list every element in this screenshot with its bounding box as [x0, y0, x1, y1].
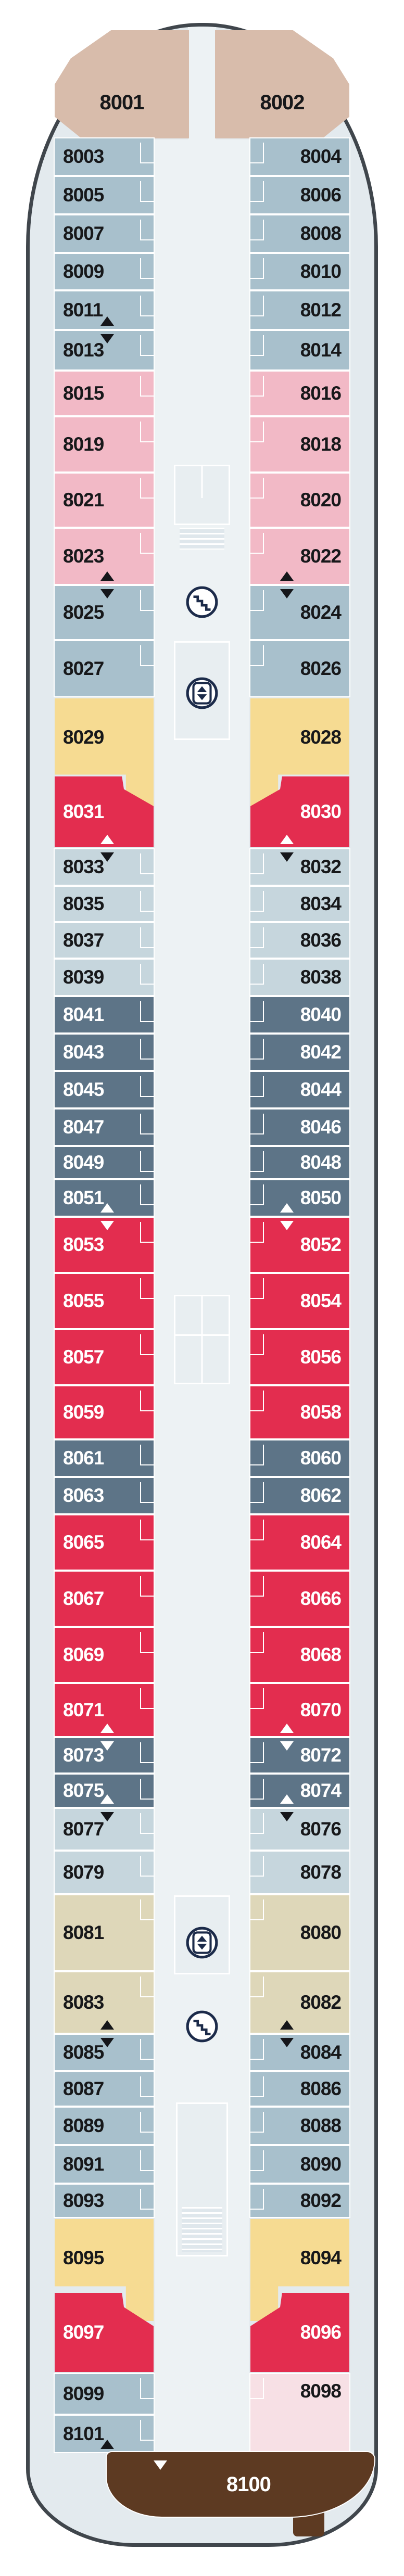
cabin-number: 8015	[63, 382, 104, 404]
cabin-number: 8093	[63, 2190, 104, 2212]
cabin-8075[interactable]: 8075	[55, 1775, 154, 1807]
cabin-8084[interactable]: 8084	[250, 2035, 349, 2070]
arrow-down-icon	[280, 1741, 294, 1751]
cabin-8027[interactable]: 8027	[55, 641, 154, 696]
cabin-8047[interactable]: 8047	[55, 1110, 154, 1145]
cabin-door	[250, 1856, 264, 1877]
cabin-number: 8087	[63, 2078, 104, 2100]
cabin-number: 8090	[300, 2153, 341, 2175]
cabin-door	[140, 2112, 154, 2133]
cabin-8098[interactable]: 8098	[250, 2374, 349, 2452]
cabin-door	[140, 927, 154, 948]
cabin-door	[140, 1520, 154, 1540]
arrow-down-icon	[154, 2460, 167, 2470]
cabin-number: 8053	[63, 1234, 104, 1256]
cabin-8064[interactable]: 8064	[250, 1515, 349, 1570]
cabin-number: 8099	[63, 2383, 104, 2405]
cabin-8081[interactable]: 8081	[55, 1895, 154, 1970]
arrow-up-icon	[100, 1203, 114, 1213]
cabin-8052[interactable]: 8052	[250, 1218, 349, 1272]
cabin-number: 8072	[300, 1744, 341, 1766]
cabin-8025[interactable]: 8025	[55, 586, 154, 639]
cabin-8074[interactable]: 8074	[250, 1775, 349, 1807]
arrow-up-icon	[280, 1724, 294, 1733]
cabin-8089[interactable]: 8089	[55, 2108, 154, 2144]
cabin-number: 8056	[300, 1346, 341, 1368]
cabin-8066[interactable]: 8066	[250, 1572, 349, 1626]
cabin-door	[250, 1114, 264, 1134]
cabin-8002[interactable]: 8002	[215, 30, 349, 138]
cabin-door	[250, 1482, 264, 1503]
cabin-8086[interactable]: 8086	[250, 2072, 349, 2106]
cabin-number: 8096	[300, 2322, 341, 2343]
cabin-door	[250, 2150, 264, 2171]
cabin-number: 8032	[300, 856, 341, 878]
cabin-number: 8058	[300, 1401, 341, 1423]
cabin-8090[interactable]: 8090	[250, 2146, 349, 2183]
bow-corridor	[188, 27, 216, 141]
cabin-8053[interactable]: 8053	[55, 1218, 154, 1272]
cabin-number: 8013	[63, 339, 104, 361]
cabin-number: 8021	[63, 489, 104, 511]
cabin-8077[interactable]: 8077	[55, 1809, 154, 1850]
cabin-number: 8046	[300, 1116, 341, 1138]
cabin-door	[140, 1445, 154, 1465]
cabin-number: 8069	[63, 1644, 104, 1666]
cabin-door	[140, 1114, 154, 1134]
cabin-8067[interactable]: 8067	[55, 1572, 154, 1626]
cabin-door	[250, 335, 264, 356]
cabin-number: 8064	[300, 1532, 341, 1553]
cabin-8055[interactable]: 8055	[55, 1274, 154, 1328]
cabin-door	[140, 478, 154, 499]
cabin-door	[140, 1632, 154, 1653]
cabin-8042[interactable]: 8042	[250, 1035, 349, 1070]
cabin-number: 8008	[300, 223, 341, 245]
cabin-number: 8079	[63, 1861, 104, 1883]
cabin-8056[interactable]: 8056	[250, 1330, 349, 1384]
forward-service-room	[174, 465, 230, 525]
cabin-door	[140, 2076, 154, 2097]
cabin-door	[140, 1222, 154, 1243]
cabin-8023[interactable]: 8023	[55, 529, 154, 584]
cabin-number: 8028	[300, 726, 341, 748]
cabin-8021[interactable]: 8021	[55, 474, 154, 527]
cabin-8049[interactable]: 8049	[55, 1147, 154, 1178]
cabin-number: 8083	[63, 1992, 104, 2013]
cabin-door	[250, 2076, 264, 2097]
arrow-down-icon	[100, 2038, 114, 2047]
cabin-door	[140, 181, 154, 202]
cabin-8076[interactable]: 8076	[250, 1809, 349, 1850]
cabin-8070[interactable]: 8070	[250, 1684, 349, 1736]
cabin-8054[interactable]: 8054	[250, 1274, 349, 1328]
elevator-icon	[185, 1925, 219, 1960]
cabin-number: 8080	[300, 1922, 341, 1944]
cabin-door	[250, 1576, 264, 1597]
cabin-number: 8001	[100, 91, 144, 114]
cabin-number: 8097	[63, 2322, 104, 2343]
cabin-number: 8048	[300, 1152, 341, 1174]
cabin-8072[interactable]: 8072	[250, 1738, 349, 1772]
cabin-number: 8067	[63, 1588, 104, 1610]
cabin-door	[140, 1688, 154, 1709]
cabin-8033[interactable]: 8033	[55, 849, 154, 885]
cabin-number: 8029	[63, 726, 104, 748]
cabin-door	[250, 645, 264, 666]
cabin-door	[250, 2189, 264, 2210]
cabin-8093[interactable]: 8093	[55, 2185, 154, 2217]
cabin-number: 8002	[260, 91, 305, 114]
cabin-door	[250, 590, 264, 611]
cabin-door	[140, 1184, 154, 1205]
cabin-door	[140, 1391, 154, 1411]
cabin-door	[140, 1779, 154, 1800]
cabin-8100[interactable]: 8100	[107, 2452, 374, 2517]
cabin-8048[interactable]: 8048	[250, 1147, 349, 1178]
cabin-door	[140, 1482, 154, 1503]
cabin-door	[250, 2039, 264, 2060]
cabin-8044[interactable]: 8044	[250, 1072, 349, 1107]
arrow-up-icon	[100, 1794, 114, 1804]
cabin-number: 8073	[63, 1744, 104, 1766]
cabin-door	[140, 964, 154, 985]
arrow-up-icon	[100, 1724, 114, 1733]
arrow-up-icon	[100, 835, 114, 844]
cabin-number: 8038	[300, 966, 341, 988]
cabin-number: 8024	[300, 602, 341, 623]
cabin-8085[interactable]: 8085	[55, 2035, 154, 2070]
cabin-door	[250, 1520, 264, 1540]
cabin-8015[interactable]: 8015	[55, 372, 154, 415]
arrow-up-icon	[100, 2020, 114, 2030]
cabin-number: 8016	[300, 382, 341, 404]
cabin-door	[250, 1779, 264, 1800]
cabin-number: 8081	[63, 1922, 104, 1944]
cabin-door	[250, 1222, 264, 1243]
cabin-door	[140, 1151, 154, 1172]
cabin-number: 8004	[300, 146, 341, 168]
cabin-number: 8054	[300, 1290, 341, 1312]
cabin-number: 8088	[300, 2115, 341, 2137]
cabin-8046[interactable]: 8046	[250, 1110, 349, 1145]
cabin-number: 8092	[300, 2190, 341, 2212]
cabin-8079[interactable]: 8079	[55, 1852, 154, 1893]
cabin-number: 8036	[300, 929, 341, 951]
forward-staircase-steps	[180, 528, 224, 550]
arrow-down-icon	[100, 1221, 114, 1230]
cabin-8008[interactable]: 8008	[250, 215, 349, 252]
cabin-8080[interactable]: 8080	[250, 1895, 349, 1970]
cabin-8020[interactable]: 8020	[250, 474, 349, 527]
cabin-door	[250, 1039, 264, 1060]
cabin-number: 8034	[300, 893, 341, 915]
cabin-8083[interactable]: 8083	[55, 1972, 154, 2033]
cabin-8006[interactable]: 8006	[250, 177, 349, 213]
cabin-8004[interactable]: 8004	[250, 138, 349, 175]
cabin-door	[140, 2150, 154, 2171]
cabin-door	[250, 1334, 264, 1355]
cabin-door	[250, 258, 264, 279]
cabin-8018[interactable]: 8018	[250, 417, 349, 471]
cabin-8051[interactable]: 8051	[55, 1180, 154, 1216]
cabin-door	[250, 1688, 264, 1709]
stairs-icon	[185, 585, 219, 619]
cabin-number: 8086	[300, 2078, 341, 2100]
cabin-8057[interactable]: 8057	[55, 1330, 154, 1384]
arrow-up-icon	[280, 2020, 294, 2030]
arrow-up-icon	[100, 316, 114, 326]
arrow-down-icon	[280, 1812, 294, 1821]
cabin-door	[140, 422, 154, 442]
cabin-door	[250, 422, 264, 442]
cabin-number: 8012	[300, 299, 341, 321]
arrow-down-icon	[100, 1812, 114, 1821]
cabin-door	[140, 1039, 154, 1060]
cabin-number: 8077	[63, 1818, 104, 1840]
cabin-number: 8062	[300, 1485, 341, 1507]
cabin-number: 8084	[300, 2042, 341, 2063]
arrow-down-icon	[280, 852, 294, 862]
cabin-door	[140, 220, 154, 240]
arrow-up-icon	[280, 1203, 294, 1213]
cabin-8014[interactable]: 8014	[250, 331, 349, 369]
cabin-number: 8045	[63, 1079, 104, 1101]
arrow-up-icon	[100, 571, 114, 581]
cabin-8065[interactable]: 8065	[55, 1515, 154, 1570]
cabin-door	[140, 2420, 154, 2441]
cabin-number: 8100	[226, 2473, 271, 2496]
cabin-number: 8095	[63, 2247, 104, 2269]
cabin-8037[interactable]: 8037	[55, 923, 154, 958]
cabin-number: 8023	[63, 545, 104, 567]
cabin-number: 8039	[63, 966, 104, 988]
cabin-number: 8011	[63, 299, 103, 321]
cabin-8009[interactable]: 8009	[55, 254, 154, 289]
cabin-door	[250, 1976, 264, 1997]
cabin-8058[interactable]: 8058	[250, 1386, 349, 1438]
cabin-number: 8050	[300, 1187, 341, 1209]
cabin-8059[interactable]: 8059	[55, 1386, 154, 1438]
cabin-number: 8098	[300, 2380, 341, 2402]
cabin-number: 8035	[63, 893, 104, 915]
cabin-8099[interactable]: 8099	[55, 2374, 154, 2414]
arrow-up-icon	[100, 2440, 114, 2449]
cabin-8092[interactable]: 8092	[250, 2185, 349, 2217]
cabin-door	[250, 1184, 264, 1205]
cabin-number: 8101	[63, 2423, 104, 2445]
cabin-number: 8027	[63, 658, 104, 680]
cabin-8034[interactable]: 8034	[250, 887, 349, 921]
cabin-number: 8078	[300, 1861, 341, 1883]
cabin-door	[250, 1151, 264, 1172]
cabin-door	[250, 376, 264, 397]
cabin-number: 8049	[63, 1152, 104, 1174]
cabin-door	[140, 1001, 154, 1022]
cabin-number: 8059	[63, 1401, 104, 1423]
cabin-8040[interactable]: 8040	[250, 997, 349, 1032]
cabin-number: 8006	[300, 184, 341, 206]
cabin-8039[interactable]: 8039	[55, 960, 154, 995]
cabin-number: 8030	[300, 801, 341, 823]
cabin-door	[250, 1899, 264, 1920]
cabin-door	[250, 2112, 264, 2133]
cabin-8038[interactable]: 8038	[250, 960, 349, 995]
cabin-number: 8076	[300, 1818, 341, 1840]
cabin-door	[250, 1742, 264, 1763]
cabin-door	[140, 1742, 154, 1763]
cabin-door	[140, 2189, 154, 2210]
cabin-8013[interactable]: 8013	[55, 331, 154, 369]
cabin-8016[interactable]: 8016	[250, 372, 349, 415]
cabin-door	[140, 2378, 154, 2399]
aft-staircase-steps	[182, 2207, 222, 2252]
arrow-up-icon	[280, 835, 294, 844]
arrow-down-icon	[100, 589, 114, 598]
cabin-8063[interactable]: 8063	[55, 1478, 154, 1513]
cabin-door	[250, 1076, 264, 1097]
arrow-down-icon	[100, 334, 114, 343]
cabin-door	[140, 335, 154, 356]
cabin-number: 8060	[300, 1447, 341, 1469]
cabin-number: 8005	[63, 184, 104, 206]
arrow-down-icon	[100, 852, 114, 862]
cabin-8078[interactable]: 8078	[250, 1852, 349, 1893]
cabin-door	[250, 220, 264, 240]
cabin-number: 8007	[63, 223, 104, 245]
cabin-8026[interactable]: 8026	[250, 641, 349, 696]
cabin-8041[interactable]: 8041	[55, 997, 154, 1032]
cabin-number: 8047	[63, 1116, 104, 1138]
cabin-number: 8022	[300, 545, 341, 567]
cabin-door	[250, 296, 264, 316]
cabin-8087[interactable]: 8087	[55, 2072, 154, 2106]
cabin-8011[interactable]: 8011	[55, 291, 154, 329]
cabin-number: 8066	[300, 1588, 341, 1610]
cabin-door	[250, 1001, 264, 1022]
cabin-8050[interactable]: 8050	[250, 1180, 349, 1216]
cabin-door	[140, 376, 154, 397]
cabin-8019[interactable]: 8019	[55, 417, 154, 471]
cabin-number: 8068	[300, 1644, 341, 1666]
arrow-down-icon	[100, 1741, 114, 1751]
cabin-door	[140, 1813, 154, 1834]
deck-plan: 8001800280038004800580068007800880098010…	[0, 0, 404, 2576]
cabin-door	[250, 891, 264, 912]
cabin-8024[interactable]: 8024	[250, 586, 349, 639]
cabin-8091[interactable]: 8091	[55, 2146, 154, 2183]
cabin-8035[interactable]: 8035	[55, 887, 154, 921]
cabin-8071[interactable]: 8071	[55, 1684, 154, 1736]
cabin-8069[interactable]: 8069	[55, 1628, 154, 1682]
elevator-icon	[185, 676, 219, 710]
cabin-8010[interactable]: 8010	[250, 254, 349, 289]
cabin-number: 8082	[300, 1992, 341, 2013]
cabin-number: 8070	[300, 1699, 341, 1721]
arrow-down-icon	[280, 2038, 294, 2047]
cabin-number: 8031	[63, 801, 104, 823]
cabin-8088[interactable]: 8088	[250, 2108, 349, 2144]
cabin-8082[interactable]: 8082	[250, 1972, 349, 2033]
cabin-door	[250, 1278, 264, 1299]
cabin-8022[interactable]: 8022	[250, 529, 349, 584]
cabin-door	[140, 891, 154, 912]
cabin-number: 8063	[63, 1485, 104, 1507]
cabin-number: 8042	[300, 1041, 341, 1063]
arrow-up-icon	[280, 571, 294, 581]
cabin-door	[250, 1632, 264, 1653]
cabin-8012[interactable]: 8012	[250, 291, 349, 329]
cabin-door	[250, 964, 264, 985]
cabin-number: 8040	[300, 1004, 341, 1026]
cabin-8032[interactable]: 8032	[250, 849, 349, 885]
cabin-door	[250, 478, 264, 499]
cabin-8007[interactable]: 8007	[55, 215, 154, 252]
cabin-8005[interactable]: 8005	[55, 177, 154, 213]
cabin-door	[140, 590, 154, 611]
cabin-number: 8051	[63, 1187, 104, 1209]
cabin-door	[140, 1856, 154, 1877]
cabin-door	[140, 296, 154, 316]
cabin-door	[250, 927, 264, 948]
cabin-number: 8037	[63, 929, 104, 951]
cabin-8043[interactable]: 8043	[55, 1035, 154, 1070]
cabin-number: 8014	[300, 339, 341, 361]
cabin-number: 8065	[63, 1532, 104, 1553]
cabin-8061[interactable]: 8061	[55, 1440, 154, 1476]
arrow-up-icon	[280, 1794, 294, 1804]
cabin-door	[140, 1334, 154, 1355]
cabin-door	[140, 143, 154, 163]
cabin-8045[interactable]: 8045	[55, 1072, 154, 1107]
cabin-8003[interactable]: 8003	[55, 138, 154, 175]
cabin-number: 8018	[300, 433, 341, 455]
stairs-icon	[185, 2009, 219, 2044]
cabin-number: 8020	[300, 489, 341, 511]
cabin-number: 8085	[63, 2042, 104, 2063]
cabin-door	[250, 1445, 264, 1465]
cabin-8101[interactable]: 8101	[55, 2416, 154, 2452]
cabin-8068[interactable]: 8068	[250, 1628, 349, 1682]
cabin-door	[140, 258, 154, 279]
cabin-door	[140, 1976, 154, 1997]
cabin-8062[interactable]: 8062	[250, 1478, 349, 1513]
cabin-number: 8019	[63, 433, 104, 455]
cabin-8001[interactable]: 8001	[55, 30, 189, 138]
cabin-door	[140, 1076, 154, 1097]
cabin-door	[250, 2378, 264, 2399]
cabin-door	[250, 853, 264, 874]
cabin-number: 8025	[63, 602, 104, 623]
cabin-number: 8041	[63, 1004, 104, 1026]
midship-service-block	[174, 1295, 230, 1384]
cabin-door	[250, 181, 264, 202]
cabin-number: 8043	[63, 1041, 104, 1063]
cabin-8060[interactable]: 8060	[250, 1440, 349, 1476]
cabin-number: 8055	[63, 1290, 104, 1312]
cabin-8073[interactable]: 8073	[55, 1738, 154, 1772]
aft-stair-room	[176, 2102, 228, 2256]
arrow-down-icon	[280, 589, 294, 598]
arrow-down-icon	[280, 1221, 294, 1230]
cabin-number: 8074	[300, 1780, 341, 1802]
cabin-number: 8010	[300, 261, 341, 283]
cabin-number: 8033	[63, 856, 104, 878]
cabin-door	[250, 1813, 264, 1834]
cabin-door	[140, 533, 154, 554]
cabin-number: 8057	[63, 1346, 104, 1368]
cabin-8036[interactable]: 8036	[250, 923, 349, 958]
